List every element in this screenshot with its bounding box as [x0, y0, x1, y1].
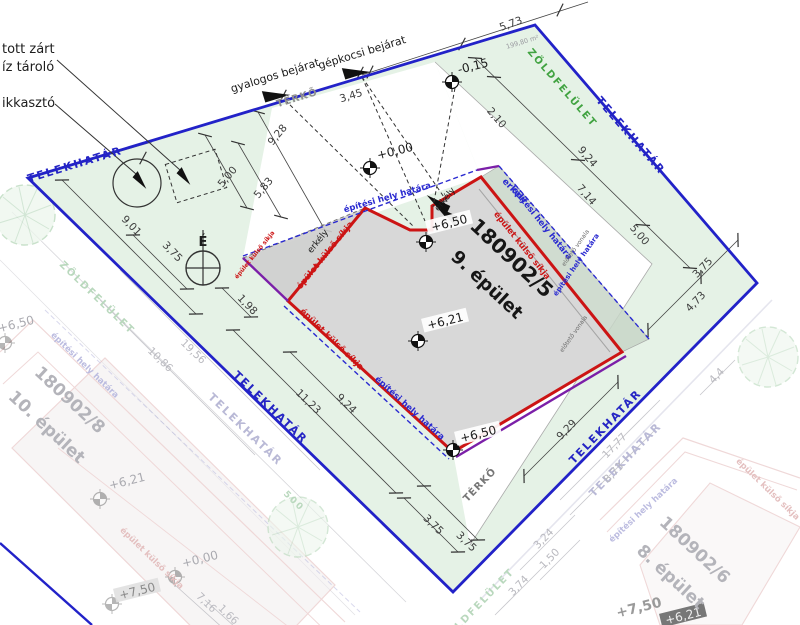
neighbour-boundary [0, 543, 92, 625]
north-label: É [199, 234, 208, 250]
tank-callout-line2: íz tároló [2, 60, 54, 75]
svg-text:+7,50: +7,50 [118, 580, 157, 602]
site-plan-canvas: É -0,15 +0,00 +6,50 +6,21 +6,50 +6,50 +6… [0, 0, 800, 625]
dim-label: 10,86 [145, 345, 175, 375]
elevation-label: +6,50 [0, 313, 36, 335]
elevation-label: +7,50 [113, 578, 161, 604]
site-plan-drawing: É -0,15 +0,00 +6,50 +6,21 +6,50 +6,50 +6… [0, 0, 800, 625]
tank-callout-line1: tott zárt [2, 42, 55, 57]
dim-label: 4,4 [707, 366, 727, 387]
tree-icon [738, 327, 798, 387]
elevation-label: +7,50 [615, 595, 664, 622]
soakaway-callout: ikkasztó [2, 96, 55, 111]
